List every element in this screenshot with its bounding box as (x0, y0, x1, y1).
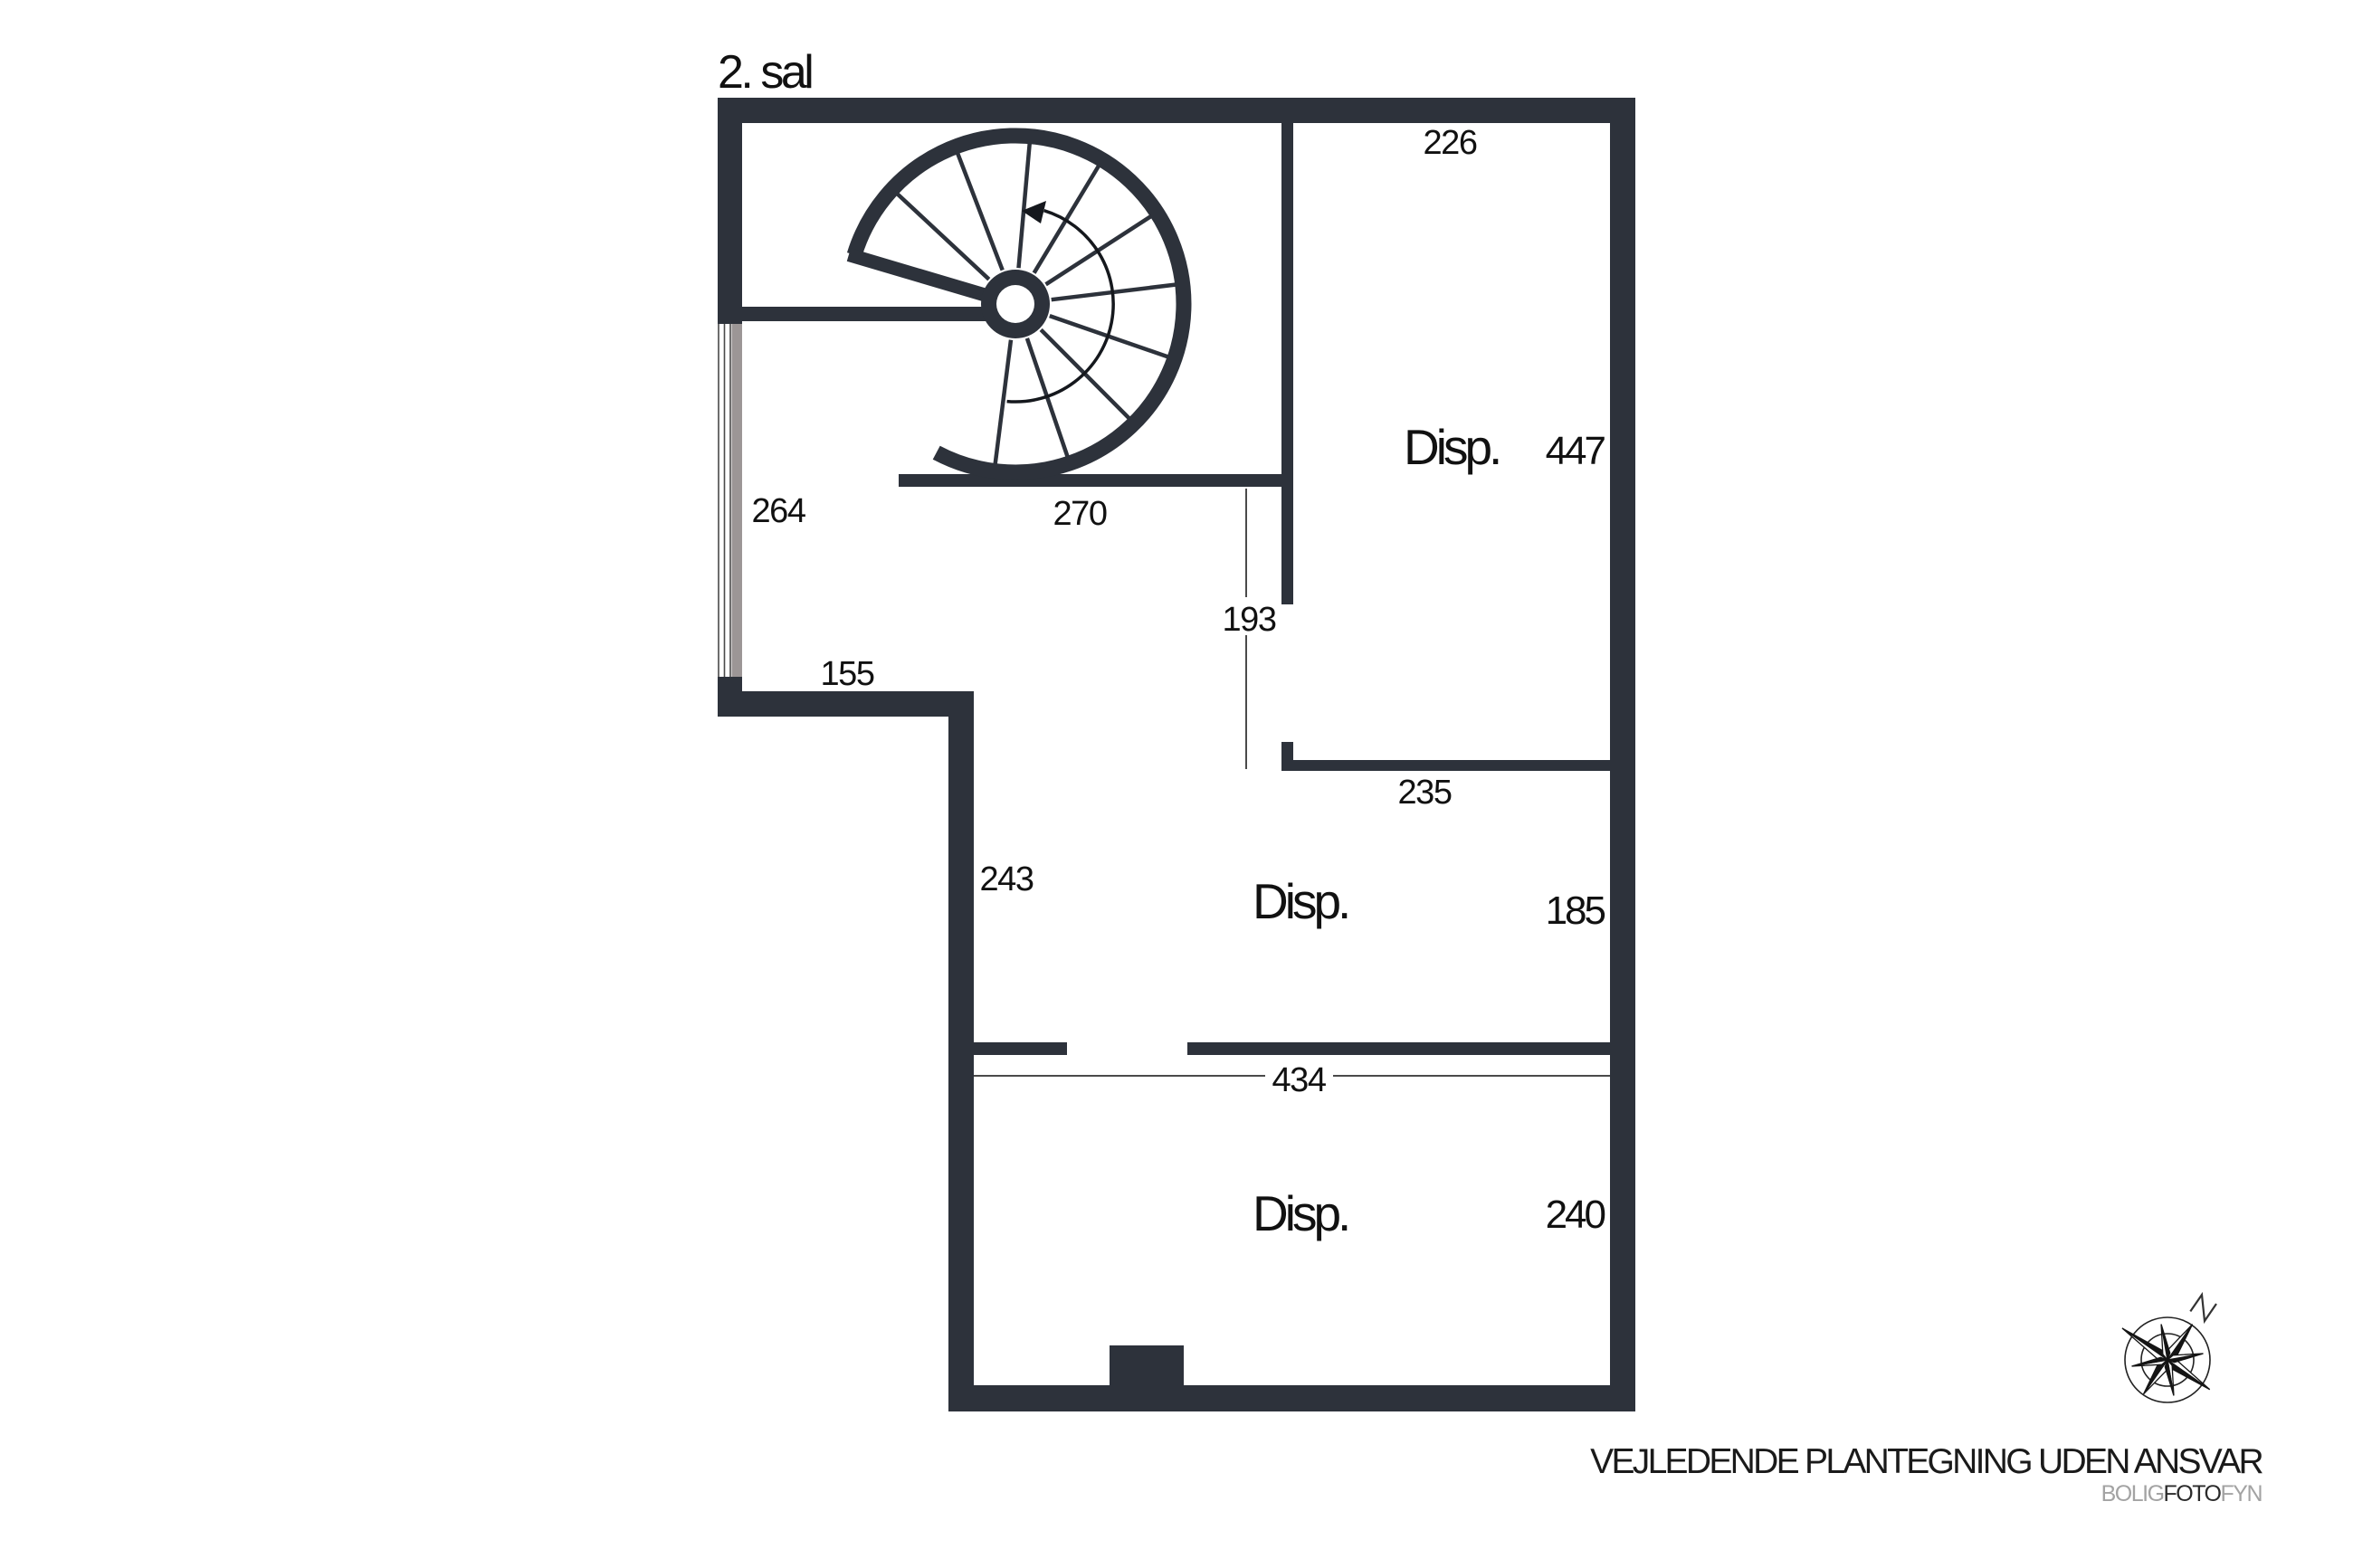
svg-text:2. sal: 2. sal (718, 46, 812, 99)
svg-text:BOLIGFOTOFYN: BOLIGFOTOFYN (2101, 1481, 2262, 1506)
svg-text:243: 243 (980, 860, 1034, 898)
svg-text:447: 447 (1546, 429, 1605, 473)
svg-text:155: 155 (821, 655, 874, 693)
svg-text:434: 434 (1272, 1061, 1327, 1099)
svg-text:Disp.: Disp. (1253, 873, 1348, 929)
svg-text:Disp.: Disp. (1253, 1185, 1348, 1241)
svg-text:226: 226 (1424, 124, 1477, 162)
svg-text:235: 235 (1398, 774, 1452, 812)
svg-text:193: 193 (1223, 601, 1276, 639)
svg-text:270: 270 (1053, 495, 1107, 533)
svg-text:185: 185 (1546, 889, 1605, 933)
svg-text:VEJLEDENDE PLANTEGNING UDEN AN: VEJLEDENDE PLANTEGNING UDEN ANSVAR (1590, 1442, 2262, 1481)
svg-text:240: 240 (1546, 1193, 1605, 1237)
svg-text:264: 264 (752, 492, 806, 530)
svg-text:Disp.: Disp. (1404, 419, 1499, 475)
